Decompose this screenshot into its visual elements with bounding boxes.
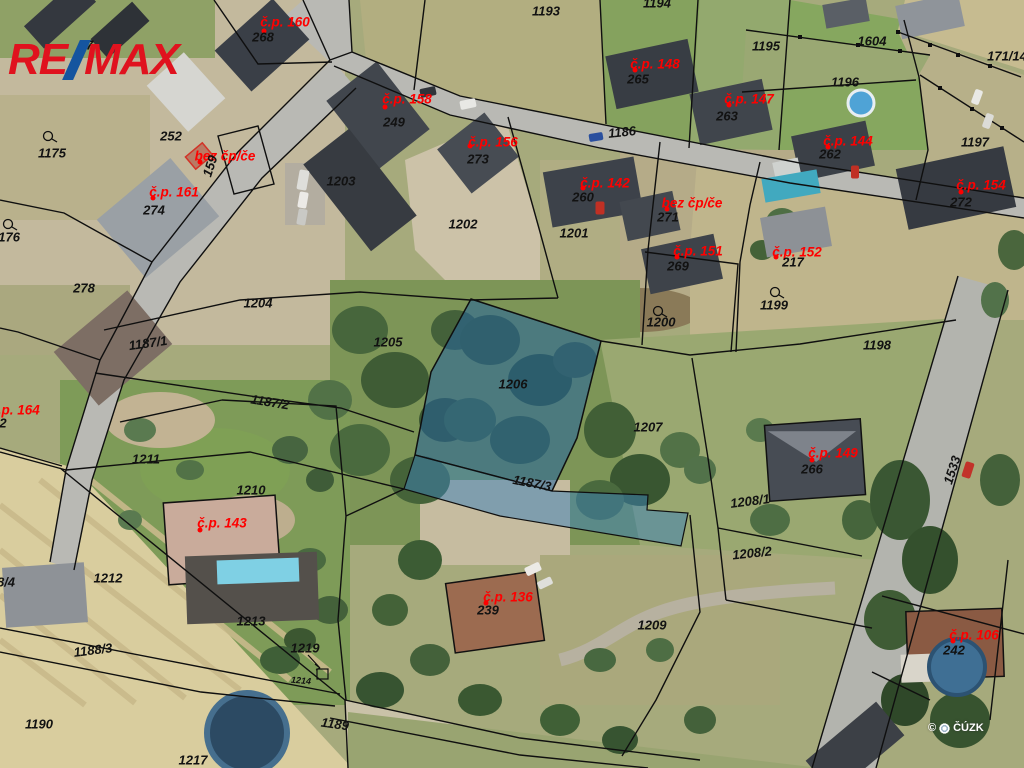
parcel-number-label: 1195 — [752, 40, 780, 53]
parcel-number-label: 260 — [572, 191, 594, 204]
house-number-label: č.p. 106 — [949, 628, 999, 642]
parcel-number-label: 1206 — [499, 378, 528, 391]
house-number-label: č.p. 161 — [149, 185, 199, 199]
parcel-number-label: 1201 — [560, 227, 589, 240]
house-number-label: bez čp/če — [662, 196, 723, 210]
parcel-number-label: 265 — [627, 73, 649, 86]
parcel-number-label: 1203 — [327, 175, 356, 188]
label-layer: č.p. 160č.p. 158č.p. 156č.p. 148č.p. 147… — [0, 0, 1024, 768]
parcel-number-label: 1219 — [291, 642, 320, 655]
parcel-number-label: 1196 — [831, 76, 859, 89]
parcel-number-label: 1210 — [237, 484, 266, 497]
house-number-label: č.p. 156 — [468, 135, 518, 149]
house-number-label: č.p. 143 — [197, 516, 247, 530]
cuzk-logo-icon — [939, 723, 950, 734]
house-point-marker — [774, 255, 779, 260]
parcel-number-label: 278 — [73, 282, 95, 295]
parcel-number-label: 269 — [667, 260, 689, 273]
parcel-number-label: 273 — [467, 153, 489, 166]
parcel-number-label: 1533 — [941, 454, 962, 486]
parcel-number-label: 1208/2 — [732, 544, 773, 561]
parcel-number-label: 1188/3 — [73, 641, 113, 659]
parcel-number-label: 171/14 — [987, 50, 1024, 63]
parcel-number-label: 1190 — [25, 718, 53, 731]
parcel-number-label: 262 — [819, 148, 841, 161]
parcel-number-label: 1209 — [638, 619, 667, 632]
parcel-number-label: 1207 — [634, 421, 663, 434]
parcel-number-label: 1187/3 — [512, 473, 553, 493]
house-point-marker — [468, 144, 473, 149]
house-point-marker — [727, 103, 732, 108]
parcel-number-label: 263 — [716, 110, 738, 123]
parcel-number-label: 249 — [383, 116, 405, 129]
cuzk-watermark: ©ČÚZK — [928, 722, 984, 734]
parcel-number-label: 1213 — [237, 615, 266, 628]
parcel-number-label: 1217 — [179, 754, 208, 767]
parcel-number-label: 1212 — [94, 572, 123, 585]
parcel-number-label: 8/4 — [0, 576, 15, 589]
parcel-number-label: 1187/2 — [250, 393, 290, 412]
house-point-marker — [383, 105, 388, 110]
parcel-number-label: 1200 — [647, 316, 676, 329]
parcel-number-label: 1176 — [0, 231, 20, 244]
remax-logo: REMAX — [8, 38, 179, 82]
parcel-number-label: 239 — [477, 604, 499, 617]
parcel-number-label: 1189 — [320, 716, 350, 733]
copyright-symbol: © — [928, 722, 936, 734]
house-number-label: č.p. 142 — [580, 176, 630, 190]
house-point-marker — [151, 196, 156, 201]
parcel-number-label: 1187/1 — [128, 334, 168, 352]
remax-re-text: RE — [8, 38, 67, 82]
parcel-number-label: 1198 — [863, 339, 891, 352]
parcel-number-label: 1202 — [449, 218, 478, 231]
house-number-label: č.p. 149 — [808, 446, 858, 460]
parcel-number-label: 268 — [252, 31, 274, 44]
parcel-number-label: 1604 — [858, 35, 887, 48]
parcel-number-label: 274 — [143, 204, 165, 217]
parcel-number-label: 252 — [160, 130, 182, 143]
parcel-number-label: 1204 — [244, 297, 273, 310]
house-number-label: č.p. 147 — [724, 92, 774, 106]
house-number-label: č.p. 160 — [260, 15, 310, 29]
parcel-number-label: 1208/1 — [729, 492, 770, 510]
house-number-label: č.p. 148 — [630, 57, 680, 71]
parcel-number-label: 242 — [943, 644, 965, 657]
house-point-marker — [198, 528, 203, 533]
parcel-number-label: 217 — [782, 256, 804, 269]
parcel-number-label: 2 — [0, 417, 7, 430]
parcel-number-label: 1199 — [760, 299, 788, 312]
parcel-number-label: 1194 — [643, 0, 671, 10]
parcel-number-label: 1193 — [532, 5, 560, 18]
parcel-number-label: 1175 — [38, 147, 66, 160]
parcel-number-label: 1214 — [291, 676, 312, 687]
parcel-number-label: 1211 — [132, 453, 160, 466]
cuzk-org-text: ČÚZK — [953, 722, 984, 734]
house-number-label: č.p. 158 — [382, 92, 432, 106]
parcel-number-label: 1186 — [607, 124, 636, 140]
parcel-number-label: 266 — [801, 463, 823, 476]
remax-max-text: MAX — [84, 38, 179, 82]
cadastral-map-screenshot: č.p. 160č.p. 158č.p. 156č.p. 148č.p. 147… — [0, 0, 1024, 768]
parcel-number-label: 1205 — [374, 336, 403, 349]
house-number-label: č.p. 154 — [956, 178, 1006, 192]
parcel-number-label: 272 — [950, 196, 972, 209]
parcel-number-label: 271 — [657, 211, 679, 224]
house-number-label: č.p. 151 — [673, 244, 723, 258]
parcel-number-label: 1197 — [961, 136, 989, 149]
